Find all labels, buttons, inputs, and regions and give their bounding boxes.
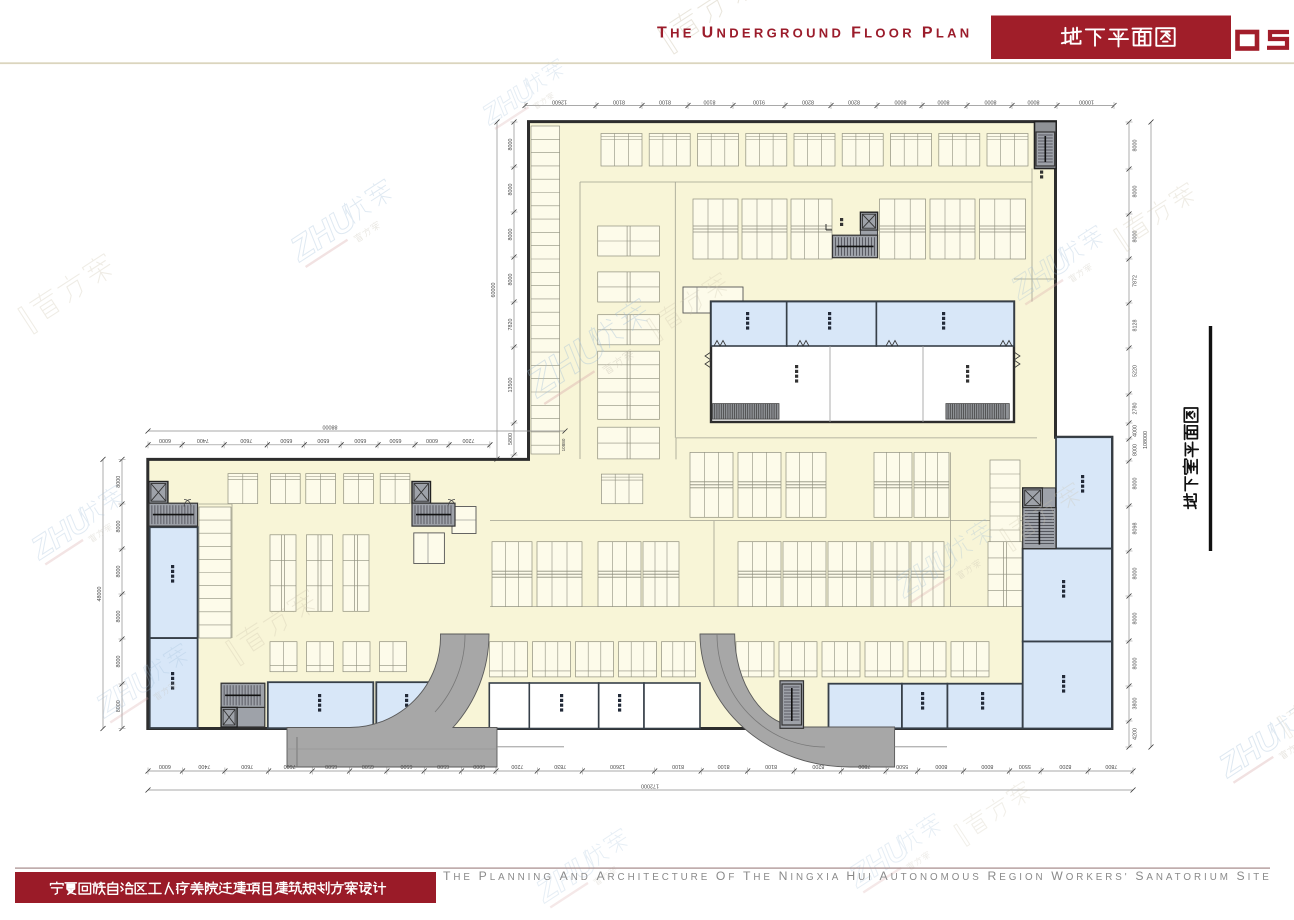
svg-text:5500: 5500 xyxy=(1019,763,1031,769)
svg-text:ZHU: ZHU xyxy=(1211,717,1287,784)
svg-text:8000: 8000 xyxy=(938,98,950,104)
svg-text:4000: 4000 xyxy=(1133,425,1139,437)
svg-text:9100: 9100 xyxy=(753,98,765,104)
svg-text:2780: 2780 xyxy=(1133,403,1139,415)
svg-text:6500: 6500 xyxy=(437,763,449,769)
svg-text:5220: 5220 xyxy=(1133,365,1139,377)
svg-text:13500: 13500 xyxy=(508,378,514,393)
svg-text:|: | xyxy=(12,301,39,336)
svg-text:8000: 8000 xyxy=(508,139,514,151)
svg-text:10000: 10000 xyxy=(1079,98,1094,104)
svg-text:8000: 8000 xyxy=(116,476,122,488)
svg-text:8100: 8100 xyxy=(613,98,625,104)
svg-text:8000: 8000 xyxy=(116,611,122,623)
svg-text:12600: 12600 xyxy=(552,98,567,104)
svg-text:7600: 7600 xyxy=(284,763,296,769)
svg-text:|: | xyxy=(949,819,971,848)
svg-text:6500: 6500 xyxy=(325,763,337,769)
svg-text:8000: 8000 xyxy=(116,656,122,668)
svg-text:8000: 8000 xyxy=(981,763,993,769)
svg-text:8100: 8100 xyxy=(704,98,716,104)
svg-text:THE UNDERGROUND FLOOR PLAN: THE UNDERGROUND FLOOR PLAN xyxy=(657,25,972,42)
svg-text:8000: 8000 xyxy=(1028,98,1040,104)
svg-text:5800: 5800 xyxy=(508,433,514,445)
svg-text:8128: 8128 xyxy=(1133,320,1139,332)
svg-text:7400: 7400 xyxy=(198,763,210,769)
svg-text:8000: 8000 xyxy=(1133,444,1139,456)
svg-text:8000: 8000 xyxy=(508,274,514,286)
svg-text:6500: 6500 xyxy=(401,763,413,769)
svg-text:88000: 88000 xyxy=(323,424,338,430)
svg-text:8098: 8098 xyxy=(1133,523,1139,535)
svg-text:7820: 7820 xyxy=(508,319,514,331)
svg-text:8000: 8000 xyxy=(116,566,122,578)
svg-text:7872: 7872 xyxy=(1133,275,1139,287)
svg-text:12600: 12600 xyxy=(610,763,625,769)
svg-text:8000: 8000 xyxy=(1133,186,1139,198)
svg-text:7200: 7200 xyxy=(511,763,523,769)
svg-text:8000: 8000 xyxy=(1133,613,1139,625)
svg-text:8200: 8200 xyxy=(848,98,860,104)
svg-text:5500: 5500 xyxy=(896,763,908,769)
svg-text:7830: 7830 xyxy=(554,763,566,769)
svg-text:THE PLANNING AND ARCHITECTURE: THE PLANNING AND ARCHITECTURE OF THE NIN… xyxy=(443,869,1272,883)
svg-text:8000: 8000 xyxy=(935,763,947,769)
svg-text:|: | xyxy=(1109,224,1132,253)
svg-text:8100: 8100 xyxy=(659,98,671,104)
svg-text:8000: 8000 xyxy=(508,184,514,196)
svg-text:10880: 10880 xyxy=(561,438,566,451)
svg-text:8100: 8100 xyxy=(765,763,777,769)
svg-text:172000: 172000 xyxy=(641,783,659,789)
svg-text:8200: 8200 xyxy=(802,98,814,104)
svg-text:6500: 6500 xyxy=(354,437,366,443)
svg-text:7800: 7800 xyxy=(858,763,870,769)
svg-text:7200: 7200 xyxy=(463,437,475,443)
svg-text:3800: 3800 xyxy=(1133,698,1139,710)
svg-text:8000: 8000 xyxy=(508,229,514,241)
svg-text:8000: 8000 xyxy=(1133,478,1139,490)
svg-text:7600: 7600 xyxy=(241,763,253,769)
svg-text:ZHU: ZHU xyxy=(842,829,917,894)
svg-text:8200: 8200 xyxy=(812,763,824,769)
svg-text:4200: 4200 xyxy=(1133,728,1139,740)
svg-text:60000: 60000 xyxy=(491,283,497,298)
svg-text:108000: 108000 xyxy=(1143,431,1149,449)
svg-text:8000: 8000 xyxy=(985,98,997,104)
svg-text:6500: 6500 xyxy=(280,437,292,443)
svg-text:ZHU: ZHU xyxy=(24,501,99,566)
svg-text:7400: 7400 xyxy=(197,437,209,443)
svg-text:8000: 8000 xyxy=(116,521,122,533)
svg-text:6500: 6500 xyxy=(390,437,402,443)
svg-text:8100: 8100 xyxy=(672,763,684,769)
svg-text:8100: 8100 xyxy=(718,763,730,769)
svg-text:ZHU: ZHU xyxy=(283,198,364,269)
svg-text:48000: 48000 xyxy=(97,587,103,602)
svg-text:8200: 8200 xyxy=(1059,763,1071,769)
svg-text:8000: 8000 xyxy=(895,98,907,104)
svg-text:6500: 6500 xyxy=(317,437,329,443)
svg-text:6000: 6000 xyxy=(473,763,485,769)
svg-text:8000: 8000 xyxy=(1133,658,1139,670)
svg-text:8000: 8000 xyxy=(1133,140,1139,152)
svg-text:6000: 6000 xyxy=(426,437,438,443)
svg-text:6000: 6000 xyxy=(159,763,171,769)
svg-text:7800: 7800 xyxy=(1105,763,1117,769)
svg-text:8000: 8000 xyxy=(1133,568,1139,580)
svg-text:7600: 7600 xyxy=(240,437,252,443)
svg-text:6500: 6500 xyxy=(362,763,374,769)
svg-text:6000: 6000 xyxy=(159,437,171,443)
